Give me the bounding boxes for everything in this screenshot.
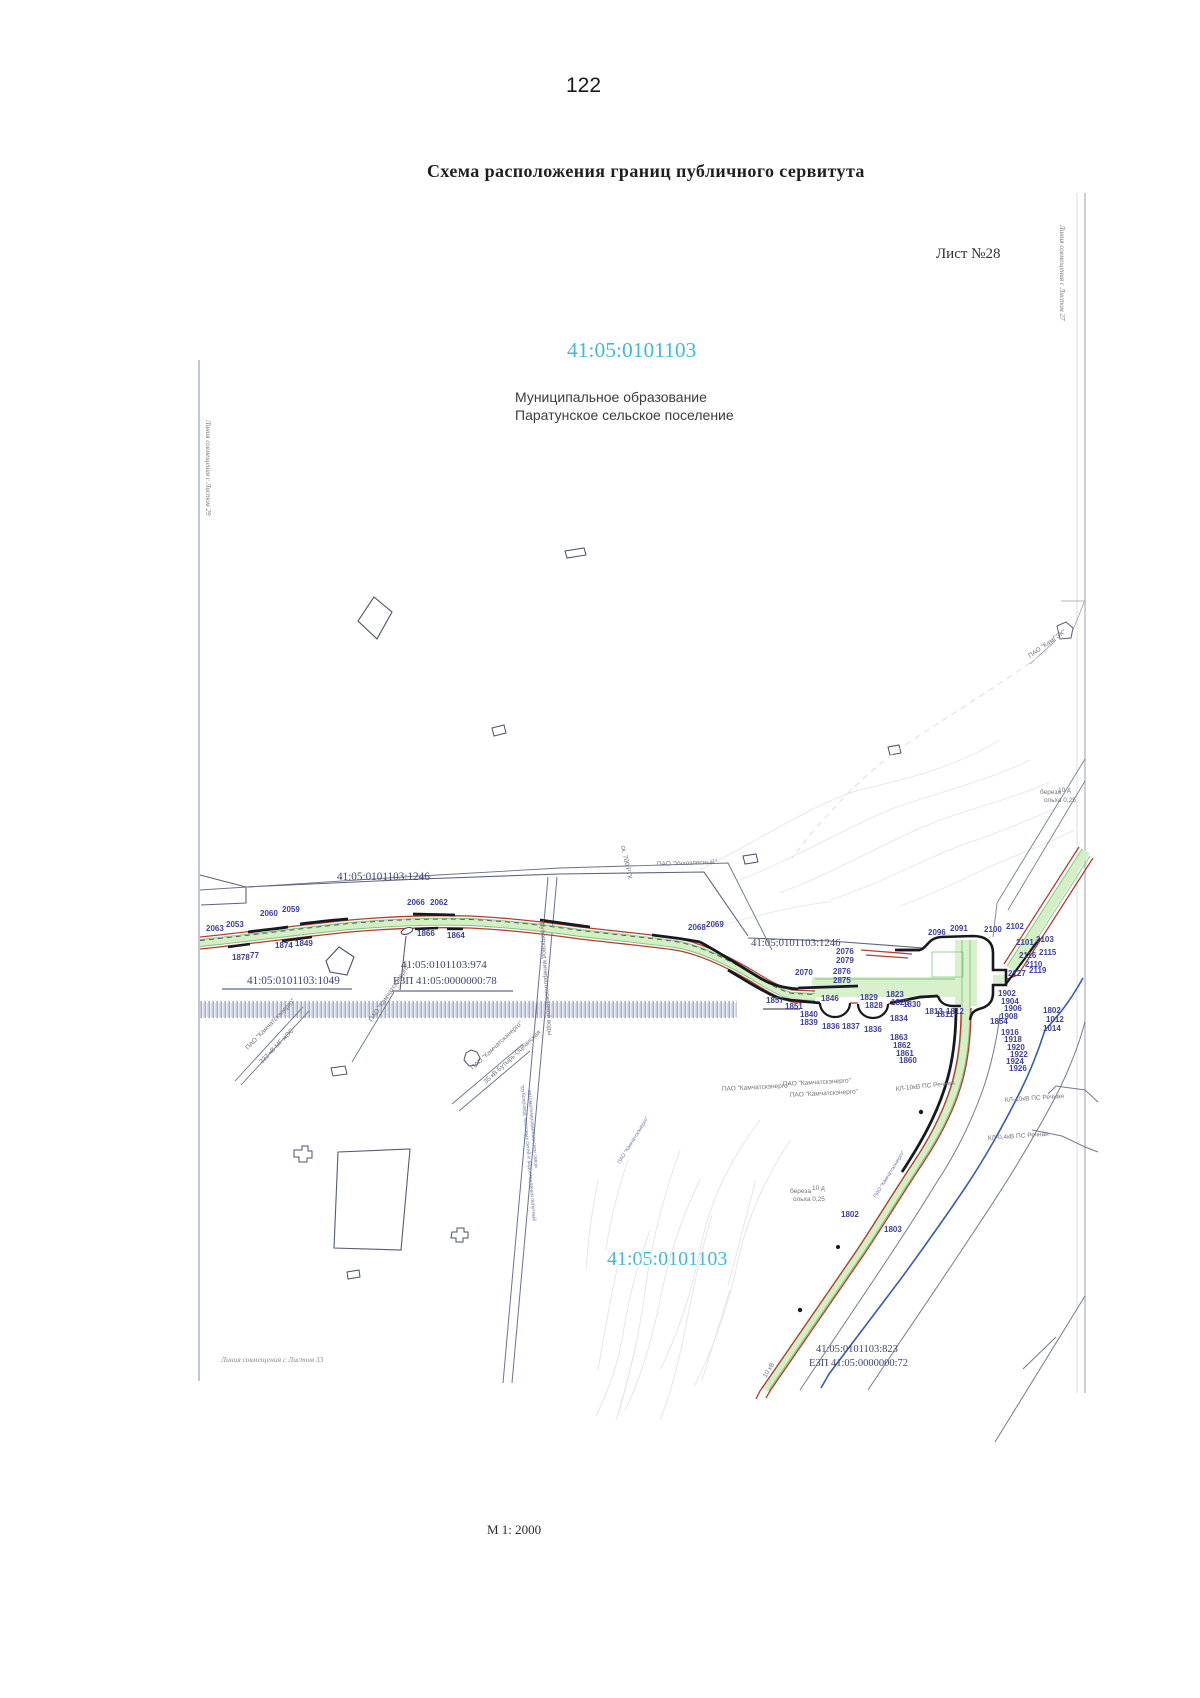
svg-text:1837: 1837: [842, 1022, 860, 1031]
svg-text:1854: 1854: [990, 1017, 1008, 1026]
svg-text:10 д: 10 д: [1058, 787, 1071, 794]
svg-text:Линия совмещения с Листом 29: Линия совмещения с Листом 29: [204, 419, 212, 516]
svg-text:1864: 1864: [447, 931, 465, 940]
svg-text:41:05:0101103:1049: 41:05:0101103:1049: [247, 975, 340, 987]
svg-text:КЛ-0,4кВ ПС Речная: КЛ-0,4кВ ПС Речная: [988, 1131, 1050, 1142]
svg-text:1014: 1014: [1043, 1024, 1061, 1033]
svg-text:1860: 1860: [899, 1056, 917, 1065]
svg-text:2079: 2079: [836, 956, 854, 965]
svg-text:2062: 2062: [430, 898, 448, 907]
svg-text:41:05:0101103:823: 41:05:0101103:823: [816, 1344, 898, 1355]
svg-text:1839: 1839: [800, 1018, 818, 1027]
svg-text:1830: 1830: [903, 1000, 921, 1009]
svg-text:1836: 1836: [864, 1025, 882, 1034]
svg-text:1874: 1874: [275, 941, 293, 950]
svg-text:1926: 1926: [1009, 1064, 1027, 1073]
svg-text:1812: 1812: [946, 1007, 964, 1016]
svg-text:1878: 1878: [232, 953, 250, 962]
svg-text:10 д: 10 д: [812, 1185, 825, 1192]
svg-text:2091: 2091: [950, 924, 968, 933]
svg-text:ольха 0,25: ольха 0,25: [1044, 797, 1076, 804]
svg-text:1849: 1849: [295, 939, 313, 948]
svg-text:ПАО "Камчатскэнерго": ПАО "Камчатскэнерго": [790, 1088, 859, 1099]
svg-text:2101: 2101: [1016, 938, 1034, 947]
svg-text:2100: 2100: [984, 925, 1002, 934]
svg-text:2076: 2076: [836, 947, 854, 956]
svg-text:2066: 2066: [407, 898, 425, 907]
svg-text:41:05:0101103:1246: 41:05:0101103:1246: [751, 937, 841, 949]
svg-text:ЕЗП 41:05:0000000:72: ЕЗП 41:05:0000000:72: [809, 1358, 908, 1369]
svg-text:ПАО "Камчатскэнерго": ПАО "Камчатскэнерго": [783, 1077, 852, 1088]
svg-text:2063: 2063: [206, 924, 224, 933]
svg-text:1846: 1846: [821, 994, 839, 1003]
svg-text:1836: 1836: [822, 1022, 840, 1031]
svg-text:41:05:0101103:1246: 41:05:0101103:1246: [337, 871, 430, 883]
svg-text:береза: береза: [790, 1187, 811, 1195]
svg-text:Линия совмещения с Листом 33: Линия совмещения с Листом 33: [220, 1355, 324, 1364]
svg-text:2876: 2876: [833, 967, 851, 976]
svg-text:2070: 2070: [795, 968, 813, 977]
svg-text:ПАО "КамГЭК": ПАО "КамГЭК": [1027, 628, 1068, 659]
svg-text:2053: 2053: [226, 920, 244, 929]
svg-text:2115: 2115: [1039, 948, 1057, 957]
svg-text:1802: 1802: [1043, 1006, 1061, 1015]
svg-text:2068: 2068: [688, 923, 706, 932]
svg-text:2059: 2059: [282, 905, 300, 914]
svg-text:2116: 2116: [1019, 951, 1037, 960]
svg-text:1803: 1803: [884, 1225, 902, 1234]
svg-text:1828: 1828: [865, 1001, 883, 1010]
svg-text:2127: 2127: [1008, 969, 1026, 978]
svg-text:41:05:0101103:974: 41:05:0101103:974: [401, 959, 487, 971]
svg-text:ПАО "Учхозлесный": ПАО "Учхозлесный": [657, 858, 718, 868]
svg-text:ПАО "Камчатскэнерго": ПАО "Камчатскэнерго": [617, 1116, 651, 1165]
svg-text:Линия совмещения с Листом 27: Линия совмещения с Листом 27: [1058, 224, 1066, 321]
svg-text:КЛ-10кВ ПС Речная: КЛ-10кВ ПС Речная: [895, 1080, 955, 1093]
svg-text:ПАО "Камчатскэнерго": ПАО "Камчатскэнерго": [722, 1082, 791, 1093]
svg-text:2103: 2103: [1036, 935, 1054, 944]
svg-text:1857: 1857: [766, 996, 784, 1005]
svg-text:ольха 0,25: ольха 0,25: [793, 1196, 825, 1203]
svg-text:2096: 2096: [928, 928, 946, 937]
svg-text:КЛ-10кВ ПС Речная: КЛ-10кВ ПС Речная: [1005, 1093, 1065, 1104]
svg-text:1834: 1834: [890, 1014, 908, 1023]
svg-text:ск. 700 РТК: ск. 700 РТК: [619, 845, 633, 880]
svg-text:2060: 2060: [260, 909, 278, 918]
svg-text:2875: 2875: [833, 976, 851, 985]
svg-text:1802: 1802: [841, 1210, 859, 1219]
svg-text:1012: 1012: [1046, 1015, 1064, 1024]
svg-text:1866: 1866: [417, 929, 435, 938]
svg-text:ПАО "Камчатскэнерго": ПАО "Камчатскэнерго": [470, 1019, 525, 1071]
svg-text:35 кВ Бутырь-Оцеанская: 35 кВ Бутырь-Оцеанская: [483, 1029, 543, 1086]
svg-text:2102: 2102: [1006, 922, 1024, 931]
svg-text:2119: 2119: [1029, 966, 1047, 975]
svg-text:ЕЗП 41:05:0000000:78: ЕЗП 41:05:0000000:78: [393, 975, 497, 987]
svg-text:2069: 2069: [706, 920, 724, 929]
svg-text:77: 77: [250, 951, 259, 960]
